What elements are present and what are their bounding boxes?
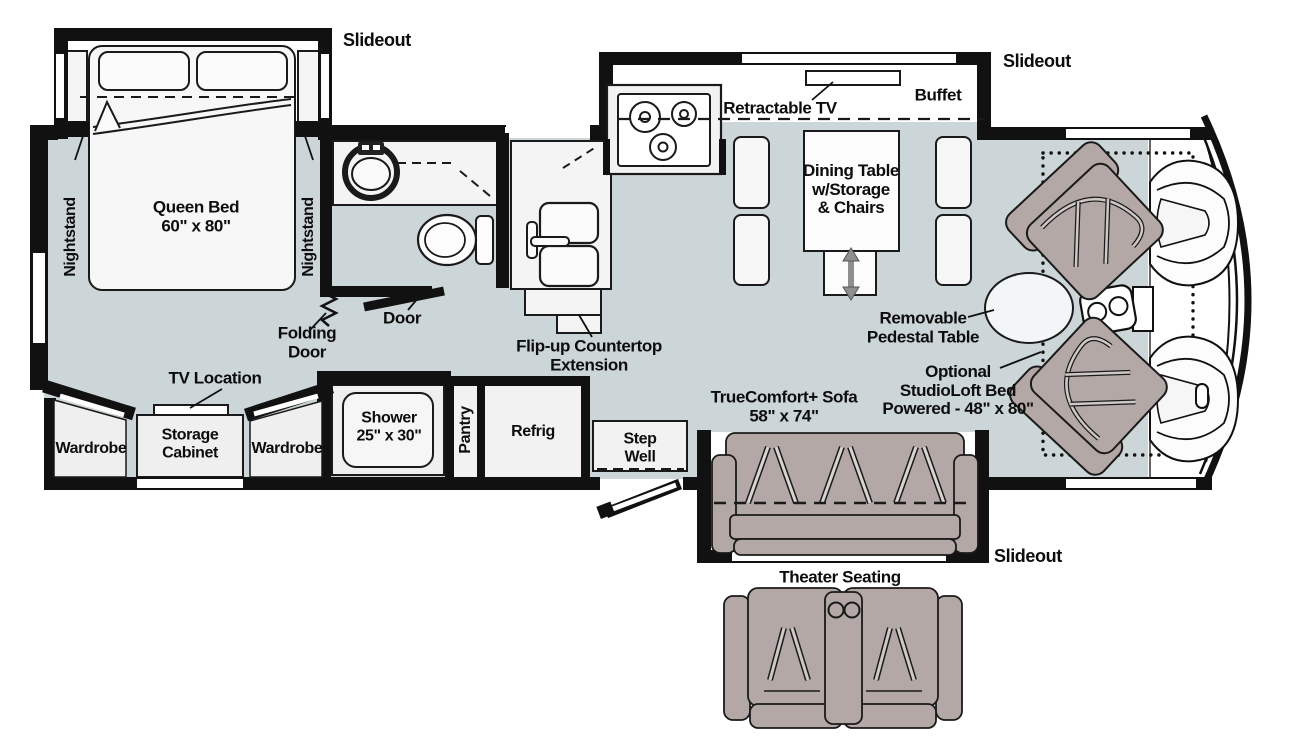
bath-door-open: [364, 291, 444, 307]
table-height-arrow: [843, 248, 859, 300]
folding-door-symbol: [322, 286, 336, 326]
bed-sheet-fold2: [93, 105, 291, 134]
bath-sink-bowl: [352, 158, 390, 190]
detail-drawing: [0, 0, 1308, 751]
bed-sheet-flap: [95, 102, 120, 131]
faucet-handle: [373, 145, 380, 150]
theater-seating-unit: [724, 588, 962, 728]
counter-dash-diag: [563, 147, 596, 168]
bed-sheet-fold: [93, 99, 291, 127]
faucet-handle: [362, 145, 369, 150]
entry-door: [596, 484, 680, 519]
kitchen-sink-bowl2: [540, 246, 598, 286]
swivel-chair-rear: [1005, 307, 1178, 479]
stove: [603, 85, 726, 175]
kitchen-faucet-spout: [531, 237, 569, 246]
swivel-chair-front: [1001, 137, 1174, 309]
bath-counter-dash2: [460, 171, 490, 196]
rv-floor-plan: Slideout Slideout Slideout Nightstand Ni…: [0, 0, 1308, 751]
toilet-tank: [476, 216, 493, 264]
truecomfort-sofa: [712, 433, 978, 555]
bath-faucet: [358, 142, 384, 155]
